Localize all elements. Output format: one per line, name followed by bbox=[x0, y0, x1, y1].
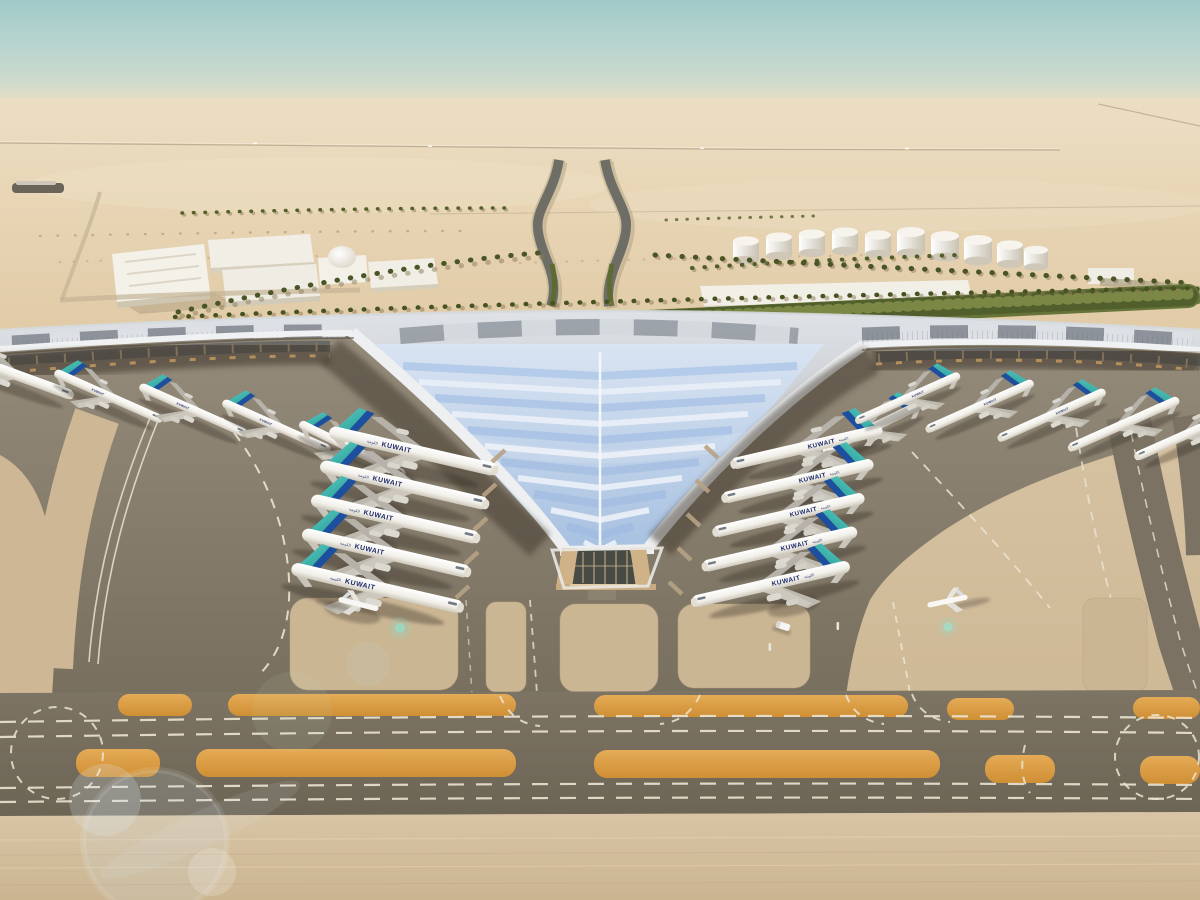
airport-aerial-rendering: KUWAIT KUWAIT KUWAIT KUWAITالكويتية KUWA… bbox=[0, 0, 1200, 900]
scene-canvas: KUWAIT KUWAIT KUWAIT KUWAITالكويتية KUWA… bbox=[0, 0, 1200, 900]
bollard bbox=[837, 622, 840, 630]
bollard bbox=[769, 643, 772, 651]
